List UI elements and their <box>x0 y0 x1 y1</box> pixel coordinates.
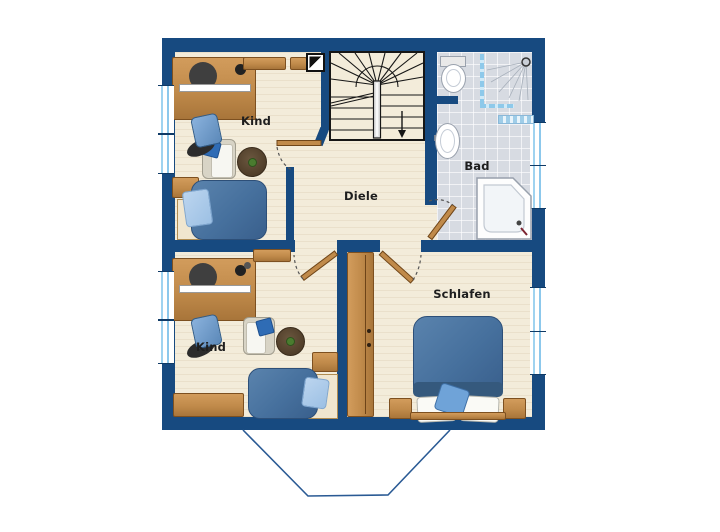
round-rug-kind-bottom <box>276 327 305 356</box>
desk-lamp-head-icon <box>244 262 251 269</box>
wall-shelf-1-kind-top <box>243 57 286 70</box>
desk-chair-kind-top <box>186 112 224 164</box>
window-left-1 <box>158 85 174 134</box>
chimney-icon <box>306 53 325 72</box>
sideboard-kind-bottom <box>173 393 244 417</box>
shower-glass-left <box>480 54 484 108</box>
roof-outline <box>243 430 450 496</box>
shower-glass-bottom <box>480 104 514 108</box>
window-left-2 <box>158 134 174 174</box>
room-label-diele: Diele <box>344 189 378 203</box>
wall-top <box>162 38 545 52</box>
nightstand-left-schlafen <box>389 398 412 419</box>
window-right-3 <box>530 287 546 332</box>
armchair-pillow <box>255 317 275 337</box>
toilet-bowl-inner <box>446 69 461 87</box>
window-right-1 <box>530 122 546 166</box>
room-label-kind-top: Kind <box>241 114 271 128</box>
wall-stub-bad <box>437 96 458 104</box>
wall-shelf-2-kind-top <box>290 57 307 70</box>
desk-ruler-icon <box>179 84 251 92</box>
chair-seat-icon <box>190 113 223 149</box>
room-label-kind-bottom: Kind <box>196 340 226 354</box>
nightstand-right-schlafen <box>503 398 526 419</box>
wardrobe-seam <box>365 255 366 414</box>
room-label-schlafen: Schlafen <box>433 287 491 301</box>
bed-headboard-schlafen <box>410 412 506 420</box>
wall-mid-segment-3 <box>421 240 545 252</box>
wall-mid-segment-2 <box>337 240 380 252</box>
bed-pillow-kind-bottom <box>301 376 330 409</box>
wall-kind-bottom-schlafen <box>337 252 347 417</box>
window-left-4 <box>158 320 174 364</box>
bed-pillow-kind-top <box>182 188 214 227</box>
wardrobe-knob <box>367 343 371 347</box>
toilet-icon <box>438 56 466 94</box>
armchair-kind-bottom <box>243 317 275 355</box>
sink-basin-inner <box>440 129 455 153</box>
plant-icon <box>287 338 294 345</box>
wall-shelf-kind-bottom <box>253 249 291 262</box>
sink-icon <box>434 123 458 158</box>
wardrobe-knob <box>367 329 371 333</box>
round-rug-kind-top <box>237 147 267 177</box>
desk-ruler-icon <box>179 285 251 293</box>
nightstand-kind-bottom <box>312 352 338 372</box>
bath-mat-icon <box>498 115 534 124</box>
desk-kind-bottom <box>172 258 256 321</box>
window-right-4 <box>530 331 546 375</box>
plant-icon <box>249 159 256 166</box>
floor-plan: Kind Diele Bad Kind Schlafen <box>0 0 720 532</box>
room-label-bad: Bad <box>464 159 489 173</box>
window-right-2 <box>530 165 546 209</box>
desk-chair-kind-bottom <box>186 313 224 365</box>
window-left-3 <box>158 271 174 320</box>
wardrobe-schlafen <box>347 252 374 417</box>
